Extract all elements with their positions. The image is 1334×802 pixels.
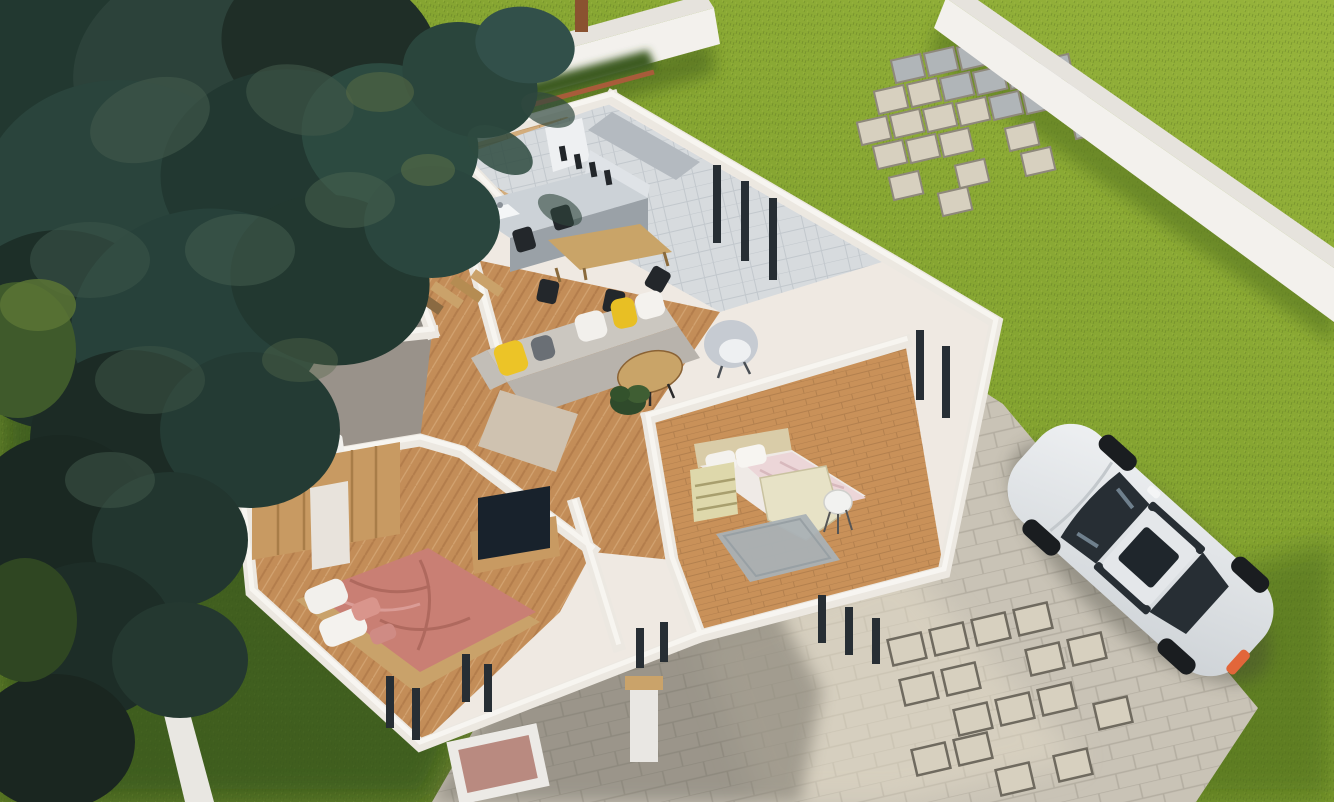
render-viewport bbox=[0, 0, 1334, 802]
tv bbox=[478, 486, 550, 560]
entry-pillar bbox=[625, 676, 663, 762]
faucet bbox=[497, 202, 503, 208]
house-render bbox=[0, 0, 1334, 802]
wardrobe-sliding-door bbox=[310, 481, 350, 570]
